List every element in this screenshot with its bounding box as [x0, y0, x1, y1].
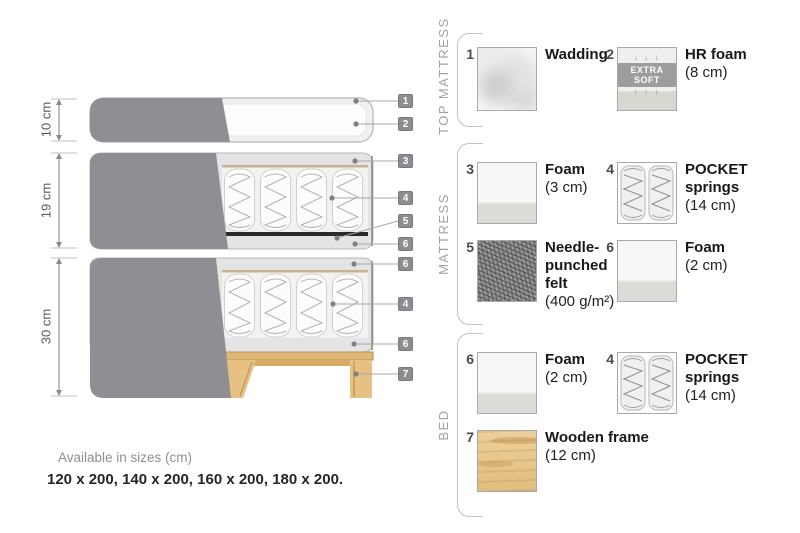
dimension-arrows	[51, 99, 77, 396]
legend-num-2: 2	[599, 46, 614, 62]
section-title-top-mattress: TOP MATTRESS	[436, 25, 452, 135]
legend-num-4b: 4	[599, 351, 614, 367]
mattress-fabric-cover	[90, 153, 228, 249]
tag-6c: 6	[398, 337, 413, 351]
pocket-springs-drawing	[618, 353, 676, 413]
swatch-bed-foam-2cm	[477, 352, 537, 414]
tag-5: 5	[398, 214, 413, 228]
swatch-pocket-springs	[617, 162, 677, 224]
swatch-foam-2cm	[617, 240, 677, 302]
mattress-block	[90, 153, 373, 249]
legend-num-6: 6	[599, 239, 614, 255]
dimension-label-30cm: 30 cm	[39, 297, 54, 357]
swatch-foam-3cm	[477, 162, 537, 224]
top-mattress-block	[90, 98, 373, 142]
section-title-bed: BED	[436, 395, 452, 455]
legend-label-foam-2cm: Foam (2 cm)	[685, 239, 781, 275]
tag-4b: 4	[398, 297, 413, 311]
tag-2: 2	[398, 117, 413, 131]
tag-3: 3	[398, 154, 413, 168]
tag-1: 1	[398, 94, 413, 108]
legend-num-4: 4	[599, 161, 614, 177]
legend-label-bed-pocket-springs: POCKET springs (14 cm)	[685, 351, 765, 405]
bed-block	[90, 258, 373, 398]
swatch-hr-foam: ↓ ↓ ↓ EXTRA SOFT ↑ ↑ ↑	[617, 47, 677, 111]
dimension-label-10cm: 10 cm	[39, 90, 54, 150]
legend-label-hr-foam: HR foam (8 cm)	[685, 46, 781, 82]
pocket-springs-drawing	[618, 163, 676, 223]
dimension-label-19cm: 19 cm	[39, 171, 54, 231]
legend-num-7: 7	[459, 429, 474, 445]
mattress-edge-tape	[222, 165, 368, 168]
available-sizes-values: 120 x 200, 140 x 200, 160 x 200, 180 x 2…	[47, 471, 343, 488]
tag-6b: 6	[398, 257, 413, 271]
legend-num-3: 3	[459, 161, 474, 177]
tag-6a: 6	[398, 237, 413, 251]
swatch-needle-punched-felt	[477, 240, 537, 302]
tag-7: 7	[398, 367, 413, 381]
extra-soft-badge: EXTRA SOFT	[618, 63, 676, 87]
compress-arrows-up: ↑ ↑ ↑	[618, 88, 676, 97]
legend-num-6b: 6	[459, 351, 474, 367]
tag-4: 4	[398, 191, 413, 205]
bed-fabric-cover	[90, 258, 231, 398]
swatch-wadding	[477, 47, 537, 111]
bed-wooden-frame	[212, 352, 373, 398]
legend-label-pocket-springs: POCKET springs (14 cm)	[685, 161, 765, 215]
swatch-bed-pocket-springs	[617, 352, 677, 414]
compress-arrows-down: ↓ ↓ ↓	[618, 53, 676, 62]
available-sizes-caption: Available in sizes (cm)	[58, 450, 192, 465]
swatch-wooden-frame	[477, 430, 537, 492]
legend-num-5: 5	[459, 239, 474, 255]
legend-label-wooden-frame: Wooden frame (12 cm)	[545, 429, 695, 465]
section-title-mattress: MATTRESS	[436, 174, 452, 294]
legend-num-1: 1	[459, 46, 474, 62]
mattress-construction-diagram: 10 cm 19 cm 30 cm 1 2 3 4 5 6 6 4 6 7 TO…	[0, 0, 800, 533]
top-mattress-fabric-cover	[90, 98, 230, 142]
